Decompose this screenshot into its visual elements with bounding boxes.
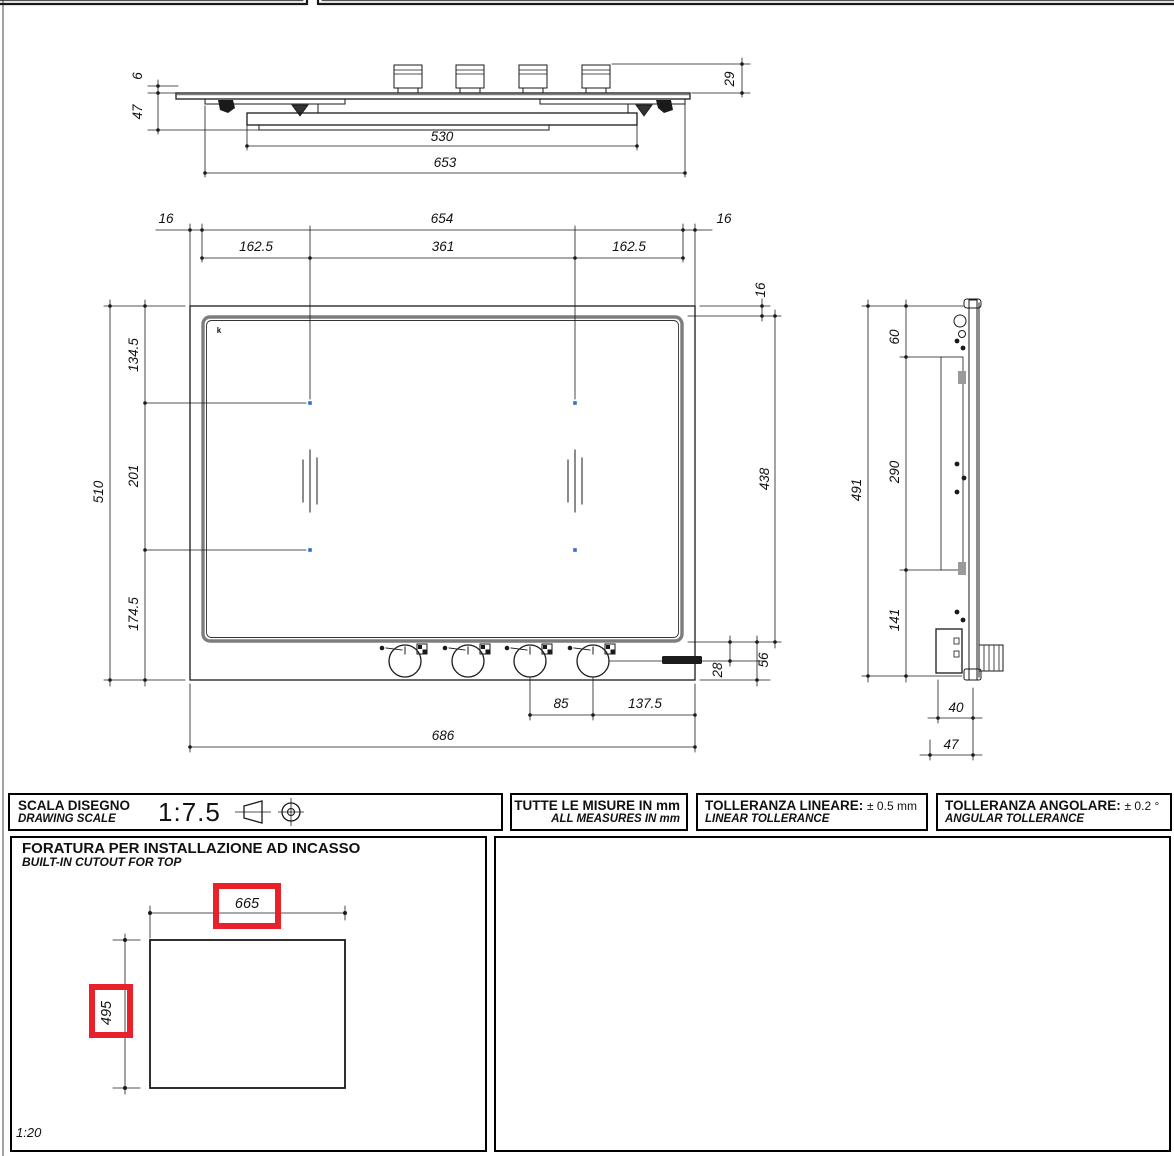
dim-plan-trim-left: 16 bbox=[158, 211, 174, 226]
dim-side-overall-depth: 47 bbox=[943, 737, 959, 752]
gas-connector bbox=[979, 645, 1003, 671]
dim-plan-knob-spacing: 85 bbox=[553, 696, 569, 711]
dim-front-glass-thickness: 6 bbox=[130, 72, 145, 80]
knob bbox=[568, 644, 615, 677]
plan-view: k bbox=[91, 211, 781, 752]
plan-dimensions: 16 654 16 162.5 361 162.5 16 438 28 bbox=[91, 211, 781, 752]
scale-box: SCALA DISEGNO DRAWING SCALE 1:7.5 bbox=[8, 793, 503, 831]
dim-plan-overall-depth: 510 bbox=[91, 480, 106, 503]
dim-plan-glass-width: 654 bbox=[431, 211, 454, 226]
cutout-scale: 1:20 bbox=[16, 1125, 41, 1140]
side-section-view: 491 60 290 141 40 47 bbox=[849, 299, 1003, 760]
dim-plan-trim-right: 16 bbox=[716, 211, 732, 226]
knob bbox=[505, 644, 552, 677]
dim-plan-burner-spacing: 361 bbox=[432, 239, 455, 254]
burner-symbols bbox=[303, 450, 582, 512]
dim-side-top-offset: 60 bbox=[887, 329, 902, 345]
knob bbox=[380, 644, 427, 677]
burner-center-dots bbox=[308, 401, 577, 552]
dim-side-bottom-offset: 141 bbox=[887, 609, 902, 632]
dim-plan-front-strip: 56 bbox=[756, 652, 771, 668]
scale-value: 1:7.5 bbox=[158, 797, 221, 828]
measures-label-en: ALL MEASURES IN mm bbox=[512, 813, 680, 826]
linear-tolerance-value: ± 0.5 mm bbox=[867, 799, 917, 813]
dim-plan-burner-offset-left: 162.5 bbox=[239, 239, 273, 254]
cutout-panel bbox=[10, 836, 487, 1152]
control-knobs bbox=[380, 644, 615, 677]
angular-tolerance-box: TOLLERANZA ANGOLARE: ± 0.2 ° ANGULAR TOL… bbox=[936, 793, 1172, 831]
dim-plan-row-bottom-offset: 174.5 bbox=[126, 597, 141, 631]
brand-logo bbox=[662, 656, 702, 664]
dim-front-overall-width: 653 bbox=[434, 155, 457, 170]
scale-label-it: SCALA DISEGNO bbox=[18, 799, 130, 813]
dim-side-box-width: 40 bbox=[948, 700, 964, 715]
dim-plan-glass-depth: 438 bbox=[757, 467, 772, 490]
angular-tolerance-value: ± 0.2 ° bbox=[1125, 799, 1160, 813]
cutout-title: FORATURA PER INSTALLAZIONE AD INCASSO BU… bbox=[22, 842, 360, 869]
scale-label-en: DRAWING SCALE bbox=[18, 813, 130, 826]
front-under-body bbox=[205, 99, 685, 130]
dim-plan-knob-center-offset: 28 bbox=[710, 662, 725, 679]
dim-front-knob-height: 29 bbox=[722, 71, 737, 88]
empty-panel bbox=[494, 836, 1171, 1152]
cutout-title-it: FORATURA PER INSTALLAZIONE AD INCASSO bbox=[22, 842, 360, 856]
angular-tolerance-label-en: ANGULAR TOLLERANCE bbox=[945, 813, 1159, 826]
front-top-plate bbox=[176, 93, 690, 99]
side-dimensions: 491 60 290 141 40 47 bbox=[849, 300, 982, 760]
linear-tolerance-label-it: TOLLERANZA LINEARE: bbox=[705, 798, 863, 813]
dim-plan-row-top-offset: 134.5 bbox=[126, 338, 141, 372]
dim-side-overall-height: 491 bbox=[849, 479, 864, 502]
cutout-title-en: BUILT-IN CUTOUT FOR TOP bbox=[22, 856, 360, 869]
dim-plan-burner-offset-right: 162.5 bbox=[612, 239, 646, 254]
dim-plan-knob-edge-offset: 137.5 bbox=[628, 696, 662, 711]
measures-box: TUTTE LE MISURE IN mm ALL MEASURES IN mm bbox=[510, 793, 688, 831]
plan-centerlines bbox=[145, 226, 766, 720]
projection-symbol-icon bbox=[235, 796, 313, 828]
plan-corner-mark: k bbox=[217, 326, 222, 335]
dim-plan-trim-top: 16 bbox=[753, 282, 768, 298]
front-knobs bbox=[394, 65, 610, 93]
dim-side-bracket-span: 290 bbox=[887, 460, 902, 484]
measures-label-it: TUTTE LE MISURE IN mm bbox=[512, 799, 680, 813]
linear-tolerance-label-en: LINEAR TOLLERANCE bbox=[705, 813, 917, 826]
angular-tolerance-label-it: TOLLERANZA ANGOLARE: bbox=[945, 798, 1121, 813]
dim-front-under-depth: 47 bbox=[130, 104, 145, 120]
drawing-sheet: 6 47 29 530 653 k bbox=[0, 0, 1174, 1156]
front-dimensions: 6 47 29 530 653 bbox=[130, 58, 750, 177]
linear-tolerance-box: TOLLERANZA LINEARE: ± 0.5 mm LINEAR TOLL… bbox=[696, 793, 928, 831]
knob bbox=[443, 644, 490, 677]
dim-front-body-width: 530 bbox=[431, 129, 454, 144]
dim-plan-overall-width: 686 bbox=[432, 728, 455, 743]
front-elevation-view: 6 47 29 530 653 bbox=[130, 58, 750, 177]
dim-plan-row-spacing: 201 bbox=[126, 465, 141, 489]
